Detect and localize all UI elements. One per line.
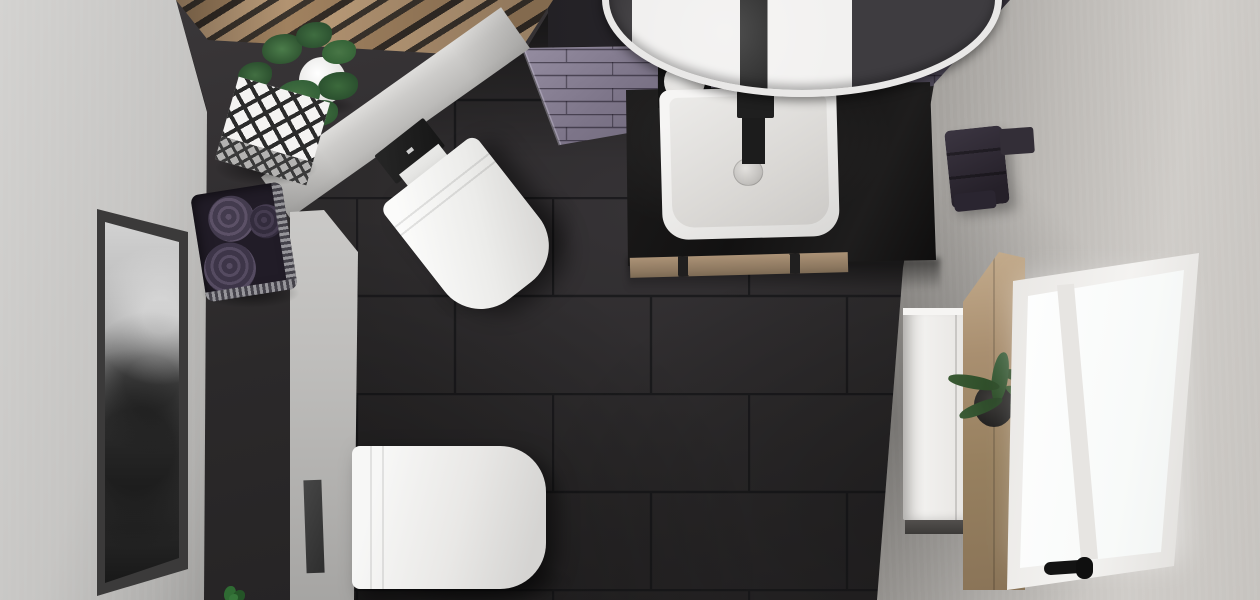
towel-basket: [190, 181, 298, 302]
cabinet-top-face: [903, 308, 965, 315]
towel-rack-arm: [999, 127, 1035, 155]
towel-stack-lower: [953, 190, 997, 212]
window-handle-knob: [1076, 557, 1093, 579]
flush-plate-left: [303, 480, 324, 574]
picture-art: [96, 206, 188, 598]
towel-radiator: [940, 118, 1050, 218]
cabinet-door-seam: [955, 308, 957, 520]
flush-button: [406, 147, 414, 154]
left-lower-wall: [288, 210, 360, 600]
small-plant-leaf: [229, 594, 238, 600]
toilet-left-body: [352, 446, 546, 589]
picture-frame: [96, 206, 188, 598]
bathroom-render: [0, 0, 1260, 600]
cabinet-base-shadow: [905, 518, 963, 534]
tall-cabinet: [903, 308, 965, 520]
